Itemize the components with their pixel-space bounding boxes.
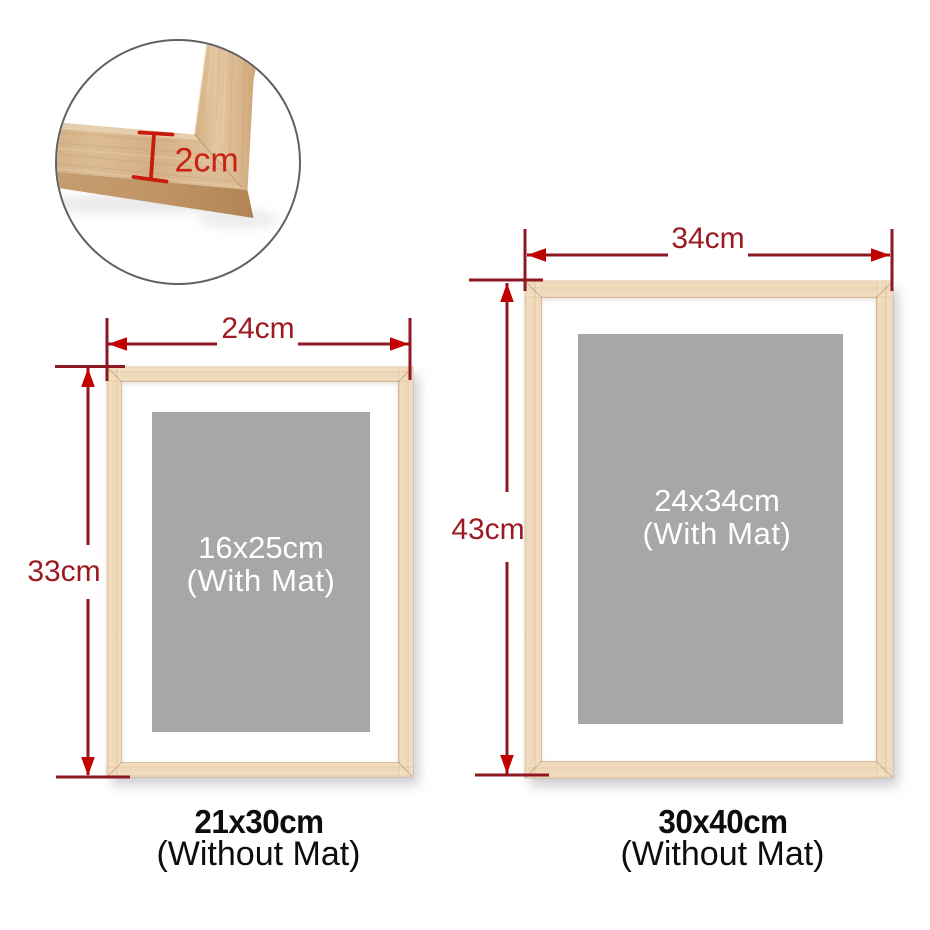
svg-text:33cm: 33cm (27, 555, 100, 588)
svg-text:43cm: 43cm (451, 513, 524, 546)
svg-text:34cm: 34cm (671, 222, 744, 255)
svg-text:24cm: 24cm (221, 312, 294, 345)
